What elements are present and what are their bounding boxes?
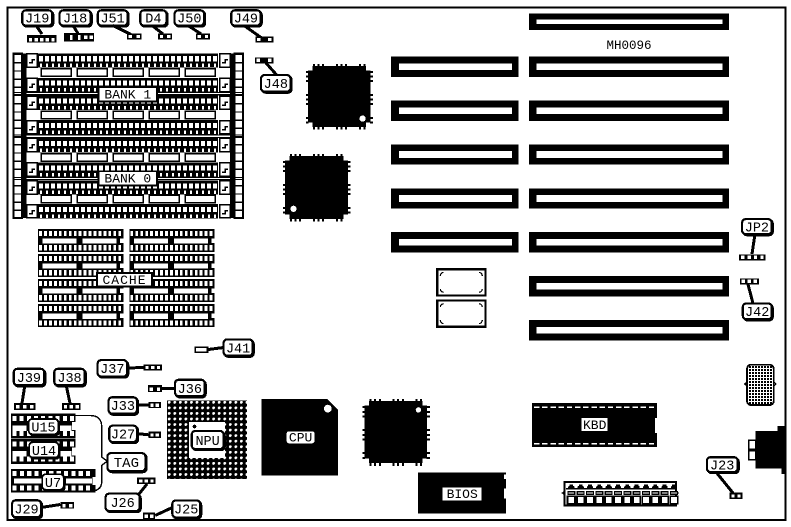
svg-text:BIOS: BIOS bbox=[447, 487, 478, 502]
svg-text:J18: J18 bbox=[63, 13, 87, 28]
svg-text:BANK 1: BANK 1 bbox=[104, 87, 151, 102]
svg-text:TAG: TAG bbox=[114, 456, 139, 472]
svg-text:KBD: KBD bbox=[583, 418, 607, 433]
svg-text:J38: J38 bbox=[57, 372, 81, 387]
svg-text:J41: J41 bbox=[226, 342, 250, 357]
svg-text:J42: J42 bbox=[745, 306, 769, 321]
svg-text:U14: U14 bbox=[32, 445, 56, 460]
svg-text:NPU: NPU bbox=[195, 435, 219, 450]
svg-text:BANK 0: BANK 0 bbox=[104, 171, 151, 186]
svg-text:U7: U7 bbox=[45, 477, 61, 492]
svg-text:JP2: JP2 bbox=[745, 221, 769, 236]
svg-text:CACHE: CACHE bbox=[102, 273, 146, 288]
svg-text:J29: J29 bbox=[14, 504, 38, 519]
svg-text:J37: J37 bbox=[100, 363, 124, 378]
svg-text:CPU: CPU bbox=[289, 430, 312, 445]
svg-text:J39: J39 bbox=[17, 372, 41, 387]
svg-text:MH0096: MH0096 bbox=[607, 39, 652, 53]
svg-text:J48: J48 bbox=[264, 78, 288, 93]
svg-text:J51: J51 bbox=[100, 13, 124, 28]
svg-text:J33: J33 bbox=[111, 400, 135, 415]
svg-text:J27: J27 bbox=[111, 429, 135, 444]
svg-text:J25: J25 bbox=[174, 504, 198, 519]
svg-text:J36: J36 bbox=[178, 383, 202, 398]
svg-text:J23: J23 bbox=[710, 459, 734, 474]
svg-text:J26: J26 bbox=[110, 497, 134, 512]
svg-text:U15: U15 bbox=[31, 421, 55, 436]
